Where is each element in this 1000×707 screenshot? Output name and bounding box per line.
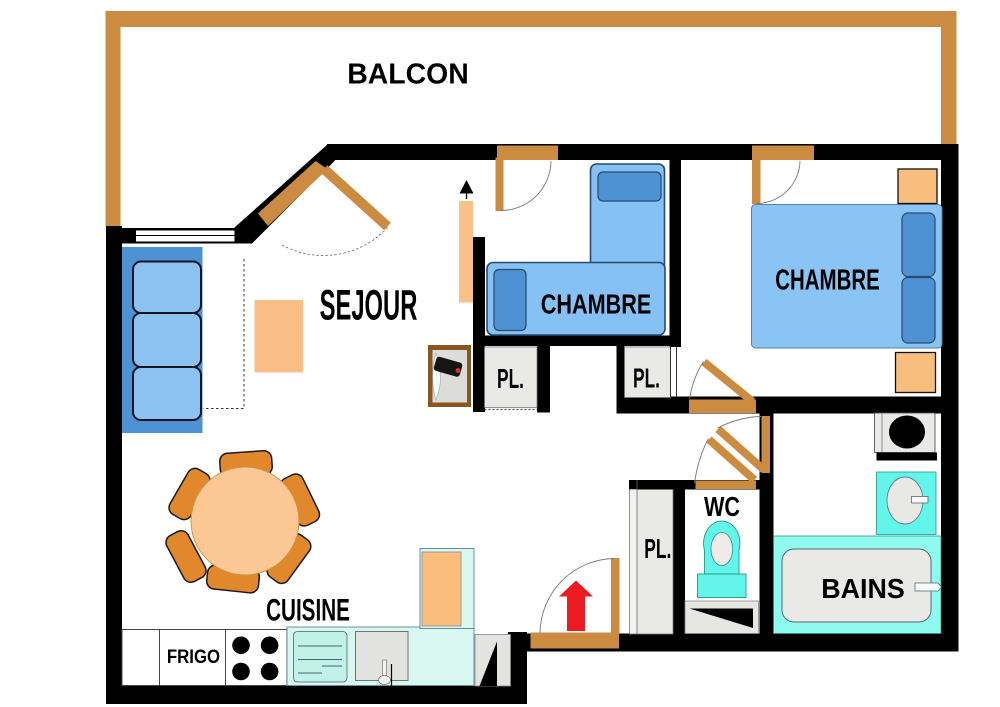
- svg-text:CHAMBRE: CHAMBRE: [541, 290, 652, 320]
- svg-text:PL.: PL.: [644, 533, 671, 564]
- svg-text:WC: WC: [704, 493, 740, 523]
- svg-text:PL.: PL.: [633, 362, 660, 393]
- svg-text:PL.: PL.: [497, 363, 524, 394]
- svg-text:CHAMBRE: CHAMBRE: [775, 264, 879, 296]
- svg-text:BAINS: BAINS: [821, 573, 905, 604]
- svg-text:BALCON: BALCON: [347, 58, 469, 90]
- svg-text:FRIGO: FRIGO: [167, 645, 220, 668]
- svg-text:SEJOUR: SEJOUR: [320, 282, 418, 329]
- svg-text:CUISINE: CUISINE: [266, 592, 350, 628]
